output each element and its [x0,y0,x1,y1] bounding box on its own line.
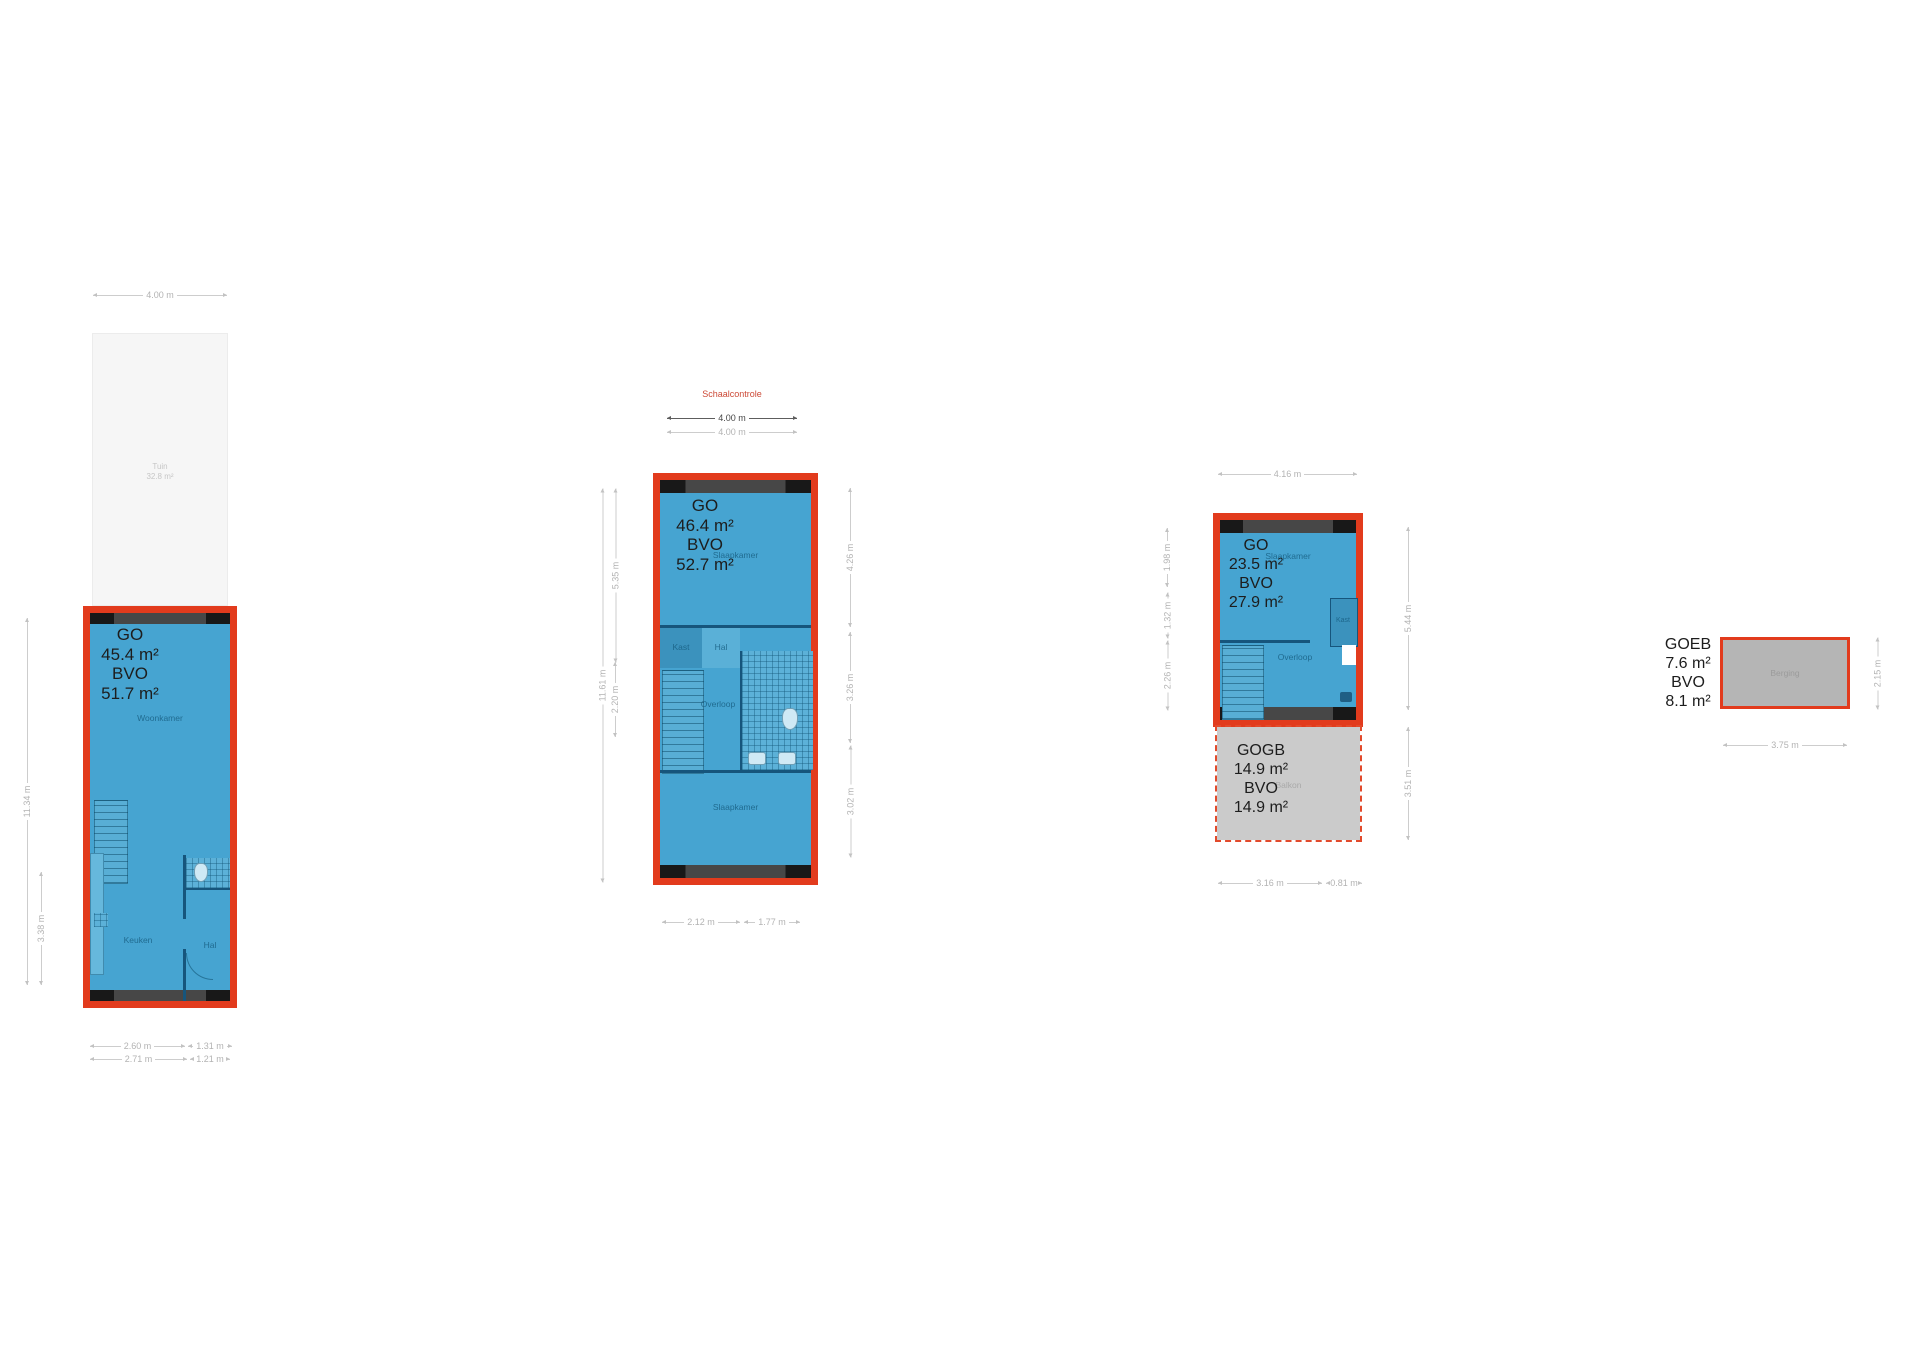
dim-line [1218,474,1271,475]
dim-line [603,488,604,666]
dim-label: 3.38 m [36,912,47,946]
dim-line [850,488,851,541]
area-line: GO [660,496,750,516]
bathroom [186,858,230,890]
dim-label: 4.26 m [845,541,856,575]
dim-line [1408,635,1409,710]
dim-line [616,592,617,662]
door-arc [186,953,213,980]
dim-line [603,704,604,882]
dim-line [227,1059,230,1060]
dim-line [1168,632,1169,638]
dimension-left-lower-ground: 3.38 m [36,872,47,985]
dimension-left-middle-second: 1.32 m [1163,593,1174,639]
dim-line [1326,883,1327,884]
dim-line [1287,883,1322,884]
area-line: GOGB [1221,741,1301,760]
dimension-bottom-right-second: 0.81 m [1326,878,1362,889]
room-label-overloop: Overloop [690,699,746,709]
dim-line [615,662,616,683]
wall-landing [1220,640,1310,643]
wall-bedroom-back [660,770,811,773]
dim-line [93,295,143,296]
area-label-storage: GOEB 7.6 m² BVO 8.1 m² [1640,635,1736,711]
exterior-wall-top [90,613,230,624]
dim-line [789,922,800,923]
toilet [782,708,798,730]
area-line: BVO [1640,673,1736,692]
exterior-wall-top [1220,520,1356,533]
dimension-bottom-left-second: 3.16 m [1218,878,1322,889]
dim-label: 2.12 m [684,917,718,928]
dim-line [851,745,852,784]
area-line: 14.9 m² [1221,760,1301,779]
dim-line [27,820,28,985]
room-label-keuken: Keuken [98,935,178,945]
dimension-bottom-right-first: 1.77 m [744,917,800,928]
dim-line [667,418,715,419]
area-label-second: GO 23.5 m² BVO 27.9 m² [1220,536,1292,612]
room-label-woonkamer: Woonkamer [90,713,230,723]
dimension-bottom1-right: 1.31 m [188,1041,232,1052]
dim-line [616,488,617,558]
dim-line [1878,690,1879,709]
dim-line [1168,592,1169,598]
first-floor-plan: Slaapkamer GO 46.4 m² BVO 52.7 m² Kast H… [653,473,818,885]
dim-line [177,295,227,296]
dim-label: 3.16 m [1253,878,1287,889]
dimension-top-second: 4.16 m [1218,469,1357,480]
dim-line [1167,574,1168,587]
dim-label: 1.21 m [193,1054,227,1065]
dim-line [1408,727,1409,767]
exterior-wall-bottom [90,990,230,1001]
dim-line [1167,528,1168,541]
dim-label: 1.32 m [1163,599,1174,633]
dimension-right-middle-first: 3.26 m [845,632,856,743]
dim-label: 1.77 m [755,917,789,928]
dim-label: 2.60 m [121,1041,155,1052]
sink [748,752,766,765]
dim-line [1408,527,1409,602]
dim-line [41,872,42,912]
dim-line [850,574,851,627]
dim-label: 4.00 m [143,290,177,301]
dim-label: 4.00 m [715,413,749,424]
garden-area: Tuin 32.8 m² [92,333,228,606]
dim-line [1218,883,1253,884]
dimension-left-lower-second: 2.26 m [1163,641,1174,711]
area-label-first: GO 46.4 m² BVO 52.7 m² [660,496,750,574]
dim-line [749,418,797,419]
area-line: 8.1 m² [1640,692,1736,711]
dimension-bottom1-left: 2.60 m [90,1041,185,1052]
area-line: 23.5 m² [1220,555,1292,574]
dim-label: 2.20 m [610,683,621,717]
dim-line [749,432,797,433]
dim-line [1168,692,1169,710]
dim-label: 2.26 m [1163,659,1174,693]
ground-floor-plan: GO 45.4 m² BVO 51.7 m² Woonkamer Keuken … [83,606,237,1008]
area-line: BVO [1220,574,1292,593]
room-label-kast: Kast [1324,616,1362,626]
dim-label: 5.35 m [611,559,622,593]
stairs [1222,645,1264,720]
dim-line [744,922,755,923]
dim-label: 3.75 m [1768,740,1802,751]
dim-label: 5.44 m [1403,602,1414,636]
dim-line [850,704,851,743]
dim-label: 3.02 m [846,785,857,819]
dim-line [27,618,28,783]
dim-line [667,432,715,433]
dim-label: 4.00 m [715,427,749,438]
dim-line [1168,640,1169,658]
dimension-bottom2-right: 1.21 m [190,1054,230,1065]
dim-label: 11.34 m [22,783,33,821]
area-line: 27.9 m² [1220,593,1292,612]
area-line: 46.4 m² [660,516,750,536]
dimension-bottom-left-first: 2.12 m [662,917,740,928]
dim-label: 1.98 m [1162,541,1173,575]
garden-name: Tuin [93,462,227,472]
dim-line [90,1046,121,1047]
garden-area-value: 32.8 m² [93,472,227,482]
area-line: BVO [90,664,170,684]
dimension-left-upper-second: 1.98 m [1162,528,1173,587]
dim-line [718,922,740,923]
room-label-overloop: Overloop [1260,652,1330,662]
area-line: 7.6 m² [1640,654,1736,673]
dim-line [90,1059,122,1060]
room-label-hal: Hal [190,940,230,950]
dim-line [851,818,852,857]
dim-line [190,1059,193,1060]
dimension-right-storage: 2.15 m [1873,638,1884,710]
dim-label: 2.71 m [122,1054,156,1065]
dimension-garden-width: 4.00 m [93,290,227,301]
sink [778,752,796,765]
area-line: GO [90,625,170,645]
dim-line [1304,474,1357,475]
stairs [662,670,704,774]
dim-line [1802,745,1847,746]
dim-line [1723,745,1768,746]
second-floor-plan: Slaapkamer GO 23.5 m² BVO 27.9 m² Overlo… [1213,513,1363,727]
garden-label: Tuin 32.8 m² [93,462,227,481]
dimension-left-total-ground: 11.34 m [22,618,33,985]
area-line: 52.7 m² [660,555,750,575]
exterior-wall-top [660,480,811,493]
room-label-kast: Kast [660,642,702,652]
dim-label: 3.26 m [845,671,856,705]
dim-line [1408,800,1409,840]
dim-label: 2.15 m [1873,657,1884,691]
dim-line [41,945,42,985]
storage-area: Berging [1720,637,1850,709]
dimension-left-total-first: 11.61 m [598,489,609,883]
dim-line [615,716,616,737]
dimension-left-lower-first: 2.20 m [610,662,621,737]
balcony-door-opening [1342,645,1356,665]
dim-line [154,1046,185,1047]
stove-hob [94,913,108,927]
area-line: BVO [660,535,750,555]
dim-line [227,1046,232,1047]
area-line: GOEB [1640,635,1736,654]
dimension-right-upper-first: 4.26 m [845,488,856,627]
dim-line [1878,637,1879,656]
dim-line [850,632,851,671]
toilet [194,863,208,882]
area-line: GO [1220,536,1292,555]
balcony-area: Balkon GOGB 14.9 m² BVO 14.9 m² [1215,725,1362,842]
room-label-slaapkamer-back: Slaapkamer [660,802,811,812]
dim-line [1361,883,1362,884]
area-label-balcony: GOGB 14.9 m² BVO 14.9 m² [1221,741,1301,817]
floorplan-sheet: 4.00 m Tuin 32.8 m² GO 45.4 m² BVO 51.7 … [0,0,1920,1358]
dim-label: 0.81 m [1327,878,1361,889]
scale-check-title: Schaalcontrole [692,389,772,399]
dim-label: 1.31 m [193,1041,227,1052]
area-line: 14.9 m² [1221,798,1301,817]
room-label-hal: Hal [702,642,740,652]
dim-line [155,1059,187,1060]
dim-line [662,922,684,923]
dimension-plan-width-first: 4.00 m [667,427,797,438]
dimension-left-upper-first: 5.35 m [611,489,622,663]
area-line: BVO [1221,779,1301,798]
dimension-right-upper-second: 5.44 m [1403,527,1414,710]
exterior-wall-bottom [660,865,811,878]
dimension-bottom2-left: 2.71 m [90,1054,187,1065]
dim-label: 11.61 m [598,667,609,705]
dim-label: 3.51 m [1403,767,1414,801]
dimension-bottom-storage: 3.75 m [1723,740,1847,751]
area-line: 45.4 m² [90,645,170,665]
dim-label: 4.16 m [1271,469,1305,480]
area-line: 51.7 m² [90,684,170,704]
area-label-ground: GO 45.4 m² BVO 51.7 m² [90,625,170,703]
dimension-right-lower-first: 3.02 m [846,746,857,858]
dimension-scale-check: 4.00 m [667,413,797,424]
dimension-right-lower-second: 3.51 m [1403,727,1414,840]
radiator [1340,692,1352,702]
room-label-berging: Berging [1723,668,1847,678]
